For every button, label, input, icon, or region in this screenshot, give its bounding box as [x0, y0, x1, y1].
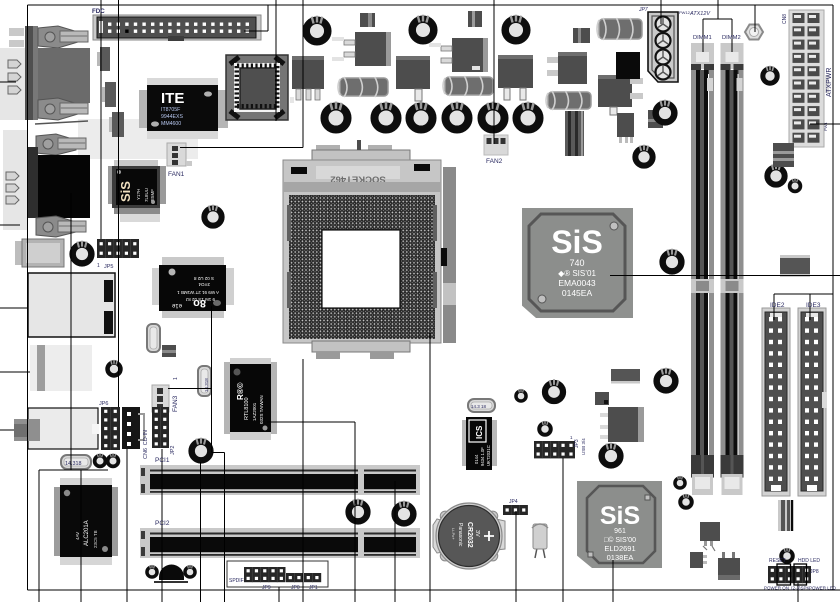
svg-text:R®©: R®© — [236, 382, 245, 400]
svg-text:CR2032: CR2032 — [466, 522, 473, 548]
svg-text:e1e: e1e — [171, 302, 182, 308]
svg-text:Li-Po+: Li-Po+ — [451, 528, 456, 540]
svg-text:CN8: CN8 — [782, 14, 788, 24]
svg-text:PW12: PW12 — [679, 10, 691, 15]
svg-text:DIMM2: DIMM2 — [722, 35, 741, 41]
svg-text:SiS: SiS — [118, 181, 133, 202]
svg-text:ATX12V: ATX12V — [689, 11, 711, 17]
svg-text:RESET: RESET — [769, 558, 786, 564]
svg-text:E5MF: E5MF — [150, 189, 155, 201]
svg-text:0138EA: 0138EA — [607, 553, 634, 562]
svg-text:1: 1 — [173, 377, 179, 380]
svg-text:CD-IN: CD-IN — [143, 430, 149, 445]
svg-text:JP0: JP0 — [291, 585, 300, 591]
svg-text:Y1?H: Y1?H — [136, 189, 141, 200]
svg-text:JP8: JP8 — [810, 569, 819, 575]
svg-text:JP9: JP9 — [262, 585, 271, 591]
svg-text:□© SIS’00: □© SIS’00 — [604, 536, 636, 544]
svg-text:14.318: 14.318 — [204, 378, 209, 392]
svg-text:CN6: CN6 — [143, 448, 149, 459]
svg-text:4AV: 4AV — [75, 532, 80, 540]
svg-text:961: 961 — [614, 528, 626, 535]
svg-text:SiS: SiS — [600, 502, 640, 530]
svg-text:23C5 TB: 23C5 TB — [93, 530, 98, 548]
svg-text:FAN3: FAN3 — [172, 395, 179, 412]
svg-text:0145EA: 0145EA — [562, 288, 593, 298]
svg-text:ITE: ITE — [161, 90, 184, 107]
svg-text:A W9 91 2T W1MB 1: A W9 91 2T W1MB 1 — [177, 290, 219, 295]
svg-text:PCI2: PCI2 — [155, 520, 170, 527]
svg-text:JP4: JP4 — [509, 499, 518, 505]
svg-text:SPDIF: SPDIF — [229, 578, 244, 584]
svg-text:POWER LED: POWER LED — [809, 586, 837, 591]
svg-text:3V: 3V — [474, 530, 480, 537]
svg-text:EMA0043: EMA0043 — [558, 278, 596, 288]
svg-text:◆® SIS’01: ◆® SIS’01 — [558, 269, 596, 278]
svg-text:SiS: SiS — [551, 224, 603, 260]
svg-text:740: 740 — [569, 258, 584, 268]
svg-text:1: 1 — [97, 263, 100, 269]
svg-text:PW1: PW1 — [823, 122, 828, 131]
svg-text:FAN2: FAN2 — [486, 158, 503, 165]
svg-text:JP6: JP6 — [99, 401, 108, 407]
svg-text:14.318: 14.318 — [65, 461, 82, 467]
svg-text:USB 3/4: USB 3/4 — [581, 438, 586, 455]
svg-text:JP5: JP5 — [104, 264, 113, 270]
svg-text:1AZ2001: 1AZ2001 — [252, 402, 257, 421]
svg-text:FAN1: FAN1 — [168, 171, 185, 178]
svg-text:032S TAIWAN: 032S TAIWAN — [259, 395, 264, 424]
svg-text:Panasonic: Panasonic — [457, 523, 463, 547]
svg-text:3YO4: 3YO4 — [198, 282, 210, 287]
svg-text:IT8705F: IT8705F — [161, 107, 180, 113]
svg-text:9944EXS: 9944EXS — [161, 114, 183, 120]
svg-text:PCI1: PCI1 — [155, 457, 170, 464]
svg-text:S 02 U2 8: S 02 U2 8 — [193, 276, 214, 281]
svg-text:FDC: FDC — [92, 8, 105, 15]
svg-text:9434 1.0F: 9434 1.0F — [480, 447, 485, 466]
svg-text:UKT2031C: UKT2031C — [486, 445, 491, 466]
svg-text:ATXPWR: ATXPWR — [826, 68, 833, 97]
svg-text:POWER ON: POWER ON — [764, 586, 789, 591]
svg-text:JP3: JP3 — [574, 439, 580, 448]
svg-text:IDE3: IDE3 — [806, 302, 821, 309]
svg-text:DIMM1: DIMM1 — [693, 35, 712, 41]
svg-text:ELD2691: ELD2691 — [604, 544, 635, 553]
svg-text:JP1: JP1 — [309, 585, 318, 591]
svg-text:JP2: JP2 — [170, 446, 176, 455]
svg-text:0144: 0144 — [474, 454, 479, 464]
svg-text:IDE2: IDE2 — [770, 302, 785, 309]
svg-text:JP7: JP7 — [638, 7, 648, 13]
svg-text:MM4600: MM4600 — [161, 121, 181, 127]
svg-text:14.3 18: 14.3 18 — [471, 404, 487, 409]
svg-text:7L8UU: 7L8UU — [144, 188, 149, 202]
svg-text:HDD LED: HDD LED — [798, 558, 820, 564]
svg-text:8o: 8o — [193, 297, 206, 309]
svg-text:ALC201A: ALC201A — [84, 520, 90, 546]
svg-text:ICS: ICS — [475, 425, 484, 439]
svg-text:(2-3)SPK: (2-3)SPK — [791, 586, 810, 591]
